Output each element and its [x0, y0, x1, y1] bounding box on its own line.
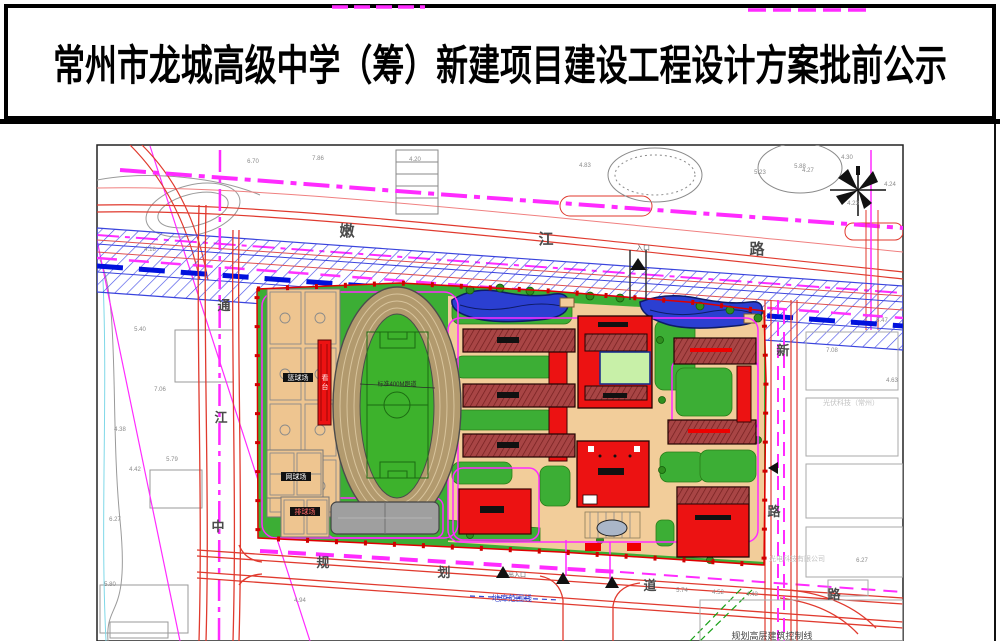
water-feature — [452, 290, 762, 328]
campus-boundary — [257, 283, 766, 565]
pond-west — [452, 290, 568, 321]
elevation-labels-group-item: 6.27 — [856, 558, 868, 564]
campus-site — [257, 283, 766, 580]
dorm-building-north — [674, 338, 756, 364]
site-labels-group-item: 光伏科技（常州） — [823, 398, 879, 407]
elevation-labels-group-item: 4.27 — [802, 168, 814, 174]
elevation-labels-group-item: 4.94 — [294, 598, 306, 604]
survey-cyan-line — [103, 280, 106, 641]
road-labels-group-item: 划 — [437, 565, 450, 580]
fountain — [597, 520, 627, 536]
south-main-building — [577, 441, 649, 507]
road-labels-group-item: 新 — [776, 343, 789, 358]
elevation-labels-group-item: 4.23 — [847, 201, 859, 207]
dorm-link-east — [737, 366, 751, 422]
gate-post-east — [627, 543, 641, 551]
teaching-cluster — [459, 329, 575, 534]
elevation-labels-group-item: 4.24 — [884, 182, 896, 188]
elevation-labels-group-item: 5.47 — [876, 318, 888, 324]
pond-east — [640, 296, 762, 328]
wind-rose — [830, 166, 886, 216]
east-entrance-arrow — [768, 462, 778, 474]
southeast-building — [677, 487, 749, 557]
green-control-dashes — [690, 588, 752, 641]
elevation-labels-group-item: 4.38 — [114, 427, 126, 433]
notice-title-box: 常州市龙城高级中学（筹）新建项目建设工程设计方案批前公示 — [4, 4, 996, 120]
bike-shed — [331, 502, 439, 534]
elevation-labels-group-item: 6.27 — [109, 517, 121, 523]
road-labels-group-item: 路 — [827, 587, 841, 602]
parking-ladder — [396, 150, 438, 214]
corridor-centerline — [97, 266, 903, 326]
elevation-labels-group-item: 7.08 — [826, 348, 838, 354]
left-existing-parcels — [97, 174, 260, 641]
fire-lane-loops — [262, 292, 758, 580]
site-labels-group-item: 排球场 — [295, 507, 316, 516]
site-labels-group-item: 规划高层建筑控制线 — [731, 630, 812, 641]
elevation-labels-group-item: 5.74 — [676, 588, 688, 594]
road-new-east — [765, 300, 797, 641]
elevation-labels-group: 4.274.304.244.236.704.204.835.235.884.18… — [104, 155, 898, 604]
main-entrance-arrow — [630, 258, 646, 270]
glass-courtyard — [600, 352, 650, 384]
right-existing-parcels — [700, 332, 903, 641]
elevation-labels-group-item: 4.42 — [129, 467, 141, 473]
campus-trees — [445, 284, 763, 564]
campus-green-base — [257, 283, 766, 565]
top-road-network — [97, 143, 903, 330]
elevation-labels-group-item: 4.43 — [746, 592, 758, 598]
teaching-building-1 — [463, 329, 575, 352]
site-labels-group-item: 网球场 — [286, 472, 307, 481]
activity-center — [578, 316, 652, 408]
elevation-labels-group-item: 4.83 — [579, 163, 591, 169]
elevation-labels-group-item: 5.23 — [754, 170, 766, 176]
entrance-markers — [496, 250, 778, 588]
road-labels-group-item: 中 — [211, 519, 224, 534]
notice-title: 常州市龙城高级中学（筹）新建项目建设工程设计方案批前公示 — [53, 32, 947, 93]
elevation-labels-group-item: 4.20 — [409, 157, 421, 163]
elevation-labels-group-item: 4.52 — [712, 590, 724, 596]
site-labels-group-item: 看 — [322, 374, 329, 382]
elevation-labels-group-item: 7.86 — [312, 156, 324, 162]
road-planned-south-magenta — [260, 551, 620, 572]
grandstand — [318, 340, 331, 425]
elevation-labels-group-item: 7.06 — [154, 387, 166, 393]
road-labels-group-item: 江 — [214, 410, 227, 425]
elevation-labels-group-item: 6.70 — [247, 159, 259, 165]
elevation-labels-group-item: 4.63 — [886, 378, 898, 384]
elevation-labels-group-item: 5.40 — [134, 327, 146, 333]
elevation-labels-group-item: 5.88 — [794, 164, 806, 170]
planned-road-corridor — [97, 228, 903, 350]
campus-plaza-base — [448, 296, 764, 562]
corridor-spine — [549, 330, 567, 461]
site-labels-group-item: 标准400M跑道 — [377, 380, 416, 388]
site-labels-group-item: 入口 — [636, 244, 650, 252]
tennis-courts — [267, 450, 323, 498]
teaching-building-3 — [463, 434, 575, 457]
site-labels-group: 篮球场网球场排球场看台标准400M跑道入口出入口地库范围线规划高层建筑控制线光伏… — [286, 244, 880, 641]
gate-post-west — [585, 543, 601, 551]
road-labels-group-item: 道 — [643, 578, 656, 593]
site-labels-group-item: 出入口 — [508, 571, 526, 579]
left-parcel-magenta-lines — [97, 146, 310, 641]
map-frame — [97, 145, 903, 641]
road-labels-group-item: 通 — [217, 298, 230, 313]
running-track — [333, 287, 461, 525]
road-labels-group-item: 规 — [316, 555, 329, 570]
site-labels-group-item: 篮球场 — [288, 373, 309, 382]
road-tongjiang-middle — [198, 205, 262, 641]
campus-boundary-markers — [257, 283, 766, 565]
southwest-red-building — [459, 489, 531, 534]
basketball-courts — [267, 289, 340, 517]
elevation-labels-group-item: 4.30 — [841, 155, 853, 161]
road-labels-group-item: 嫩 — [339, 222, 355, 240]
page-right-border — [994, 124, 996, 641]
site-labels-group-item: 台 — [322, 382, 329, 391]
road-labels-group-item: 路 — [749, 240, 765, 258]
campus-lawns — [448, 300, 756, 546]
road-planned-south — [197, 550, 903, 641]
road-labels-group-item: 江 — [538, 230, 553, 248]
public-notice-page: 常州市龙城高级中学（筹）新建项目建设工程设计方案批前公示 — [0, 0, 1000, 641]
east-courtyard-cluster — [668, 338, 756, 444]
elevation-labels-group-item: 4.18 — [144, 247, 156, 253]
site-labels-group-item: 光电科技有限公司 — [769, 554, 825, 563]
dorm-building-south — [668, 420, 756, 444]
volleyball-courts — [281, 497, 329, 537]
garage-extent-line — [470, 596, 560, 600]
road-labels-group: 嫩江路通江中规划道路新路 — [211, 222, 841, 602]
site-labels-group-item: 地库范围线 — [492, 593, 532, 603]
entry-court — [585, 512, 641, 551]
road-new-east-magenta — [778, 300, 784, 641]
elevation-labels-group-item: 5.80 — [104, 582, 116, 588]
soccer-field — [367, 332, 428, 478]
title-separator-rule — [0, 119, 1000, 124]
road-labels-group-item: 路 — [767, 504, 781, 519]
teaching-building-2 — [463, 384, 575, 407]
elevation-labels-group-item: 5.79 — [166, 457, 178, 463]
road-tongjiang-centerline — [219, 150, 220, 641]
